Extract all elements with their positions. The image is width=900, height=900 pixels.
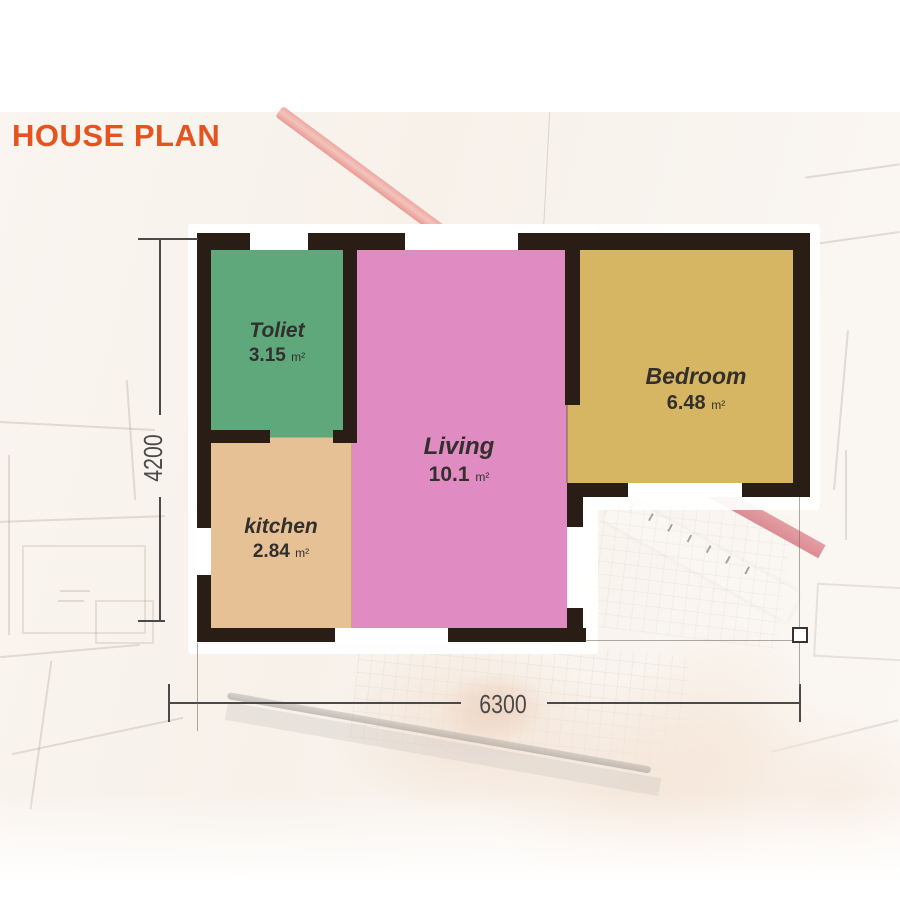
sketch-line — [0, 421, 155, 431]
dim-height-line — [159, 239, 161, 415]
room-name: kitchen — [201, 514, 361, 540]
sketch-mark — [60, 590, 90, 592]
sketch-mark — [58, 600, 84, 602]
sketch-room — [95, 600, 154, 644]
dim-width-label: 6300 — [462, 689, 544, 720]
dim-width-tick-left — [168, 684, 170, 722]
window-bedroom-bottom — [628, 483, 742, 497]
extension-line-bottom — [585, 640, 800, 641]
sketch-line — [30, 661, 53, 810]
door-toliet — [270, 430, 333, 443]
room-living-label: Living 10.1 m² — [379, 432, 539, 488]
sketch-line — [0, 515, 165, 523]
dim-width-line — [547, 702, 800, 704]
wall-right — [793, 233, 810, 497]
extension-line-left — [197, 643, 198, 731]
living-bedroom-opening-line — [566, 405, 568, 483]
photo-fade — [0, 790, 900, 900]
grid-paper — [578, 495, 792, 648]
window-top-living — [405, 233, 518, 250]
room-toliet-label: Toliet 3.15 m² — [197, 318, 357, 368]
dim-height-label: 4200 — [138, 419, 168, 498]
window-top-toliet — [250, 233, 308, 250]
dim-width-line — [169, 702, 461, 704]
room-area: 6.48 m² — [616, 391, 776, 416]
room-name: Toliet — [197, 318, 357, 344]
page-title: HOUSE PLAN — [12, 118, 220, 154]
house-plan-poster: HOUSE PLAN Toliet 3.15 m² kitchen 2.84 m… — [0, 0, 900, 900]
dim-height-line — [159, 497, 161, 622]
extension-corner-marker — [792, 627, 808, 643]
wall-living-bedroom-divider — [565, 233, 580, 405]
room-area: 10.1 m² — [379, 462, 539, 488]
sketch-line — [805, 163, 899, 178]
window-bottom-living — [335, 628, 448, 642]
room-kitchen-label: kitchen 2.84 m² — [201, 514, 361, 564]
sketch-line — [126, 380, 136, 500]
room-area: 2.84 m² — [201, 540, 361, 564]
sketch-room — [813, 583, 900, 662]
room-name: Bedroom — [616, 362, 776, 391]
room-bedroom-label: Bedroom 6.48 m² — [616, 362, 776, 416]
sketch-line — [845, 450, 847, 540]
extension-line-right — [799, 497, 800, 687]
dim-height-tick-bottom — [138, 620, 165, 622]
room-area: 3.15 m² — [197, 344, 357, 368]
dim-width-tick-right — [799, 684, 801, 722]
dim-height-tick-top — [138, 238, 198, 240]
room-name: Living — [379, 432, 539, 462]
sketch-line — [12, 717, 184, 755]
sketch-line — [0, 644, 140, 658]
sketch-line — [8, 455, 10, 635]
door-living-right — [567, 527, 583, 608]
